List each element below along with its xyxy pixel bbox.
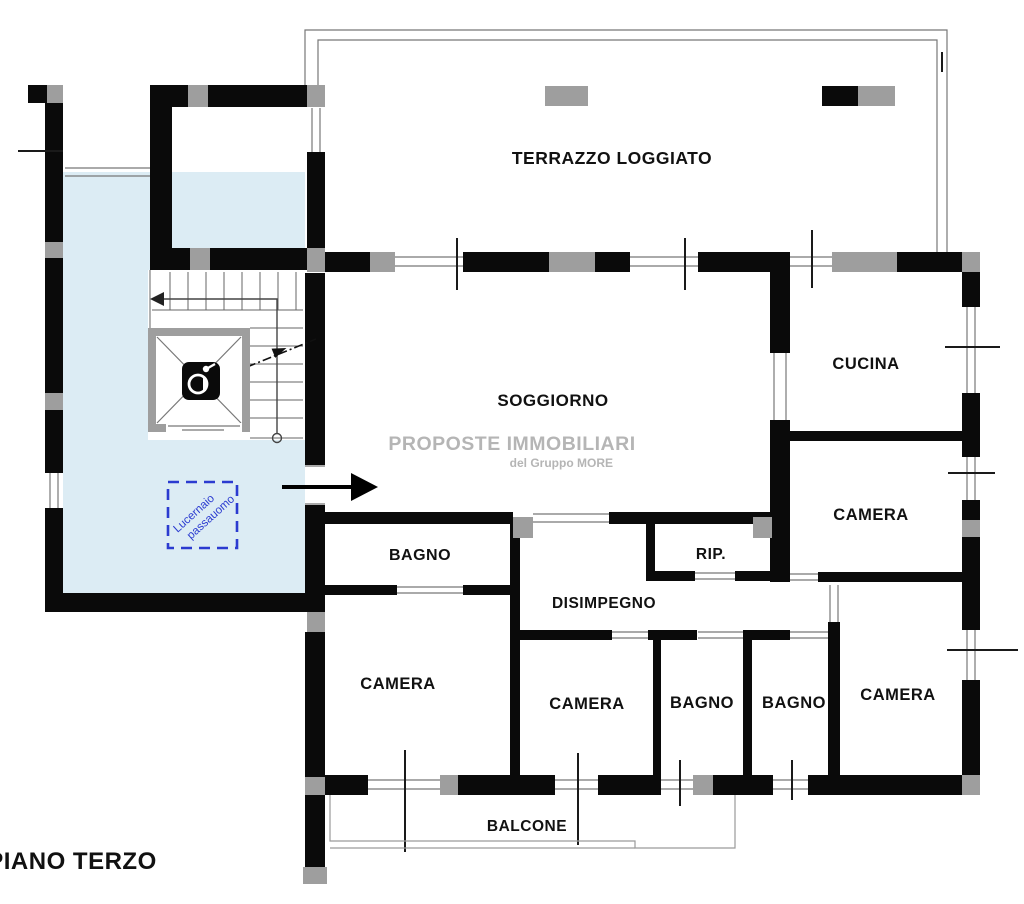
floor-plan-page: Lucernaio passauomo PROPOSTE IMMOBILIARI… — [0, 0, 1024, 904]
floor-plan-drawing: Lucernaio passauomo PROPOSTE IMMOBILIARI… — [0, 0, 1024, 904]
room-label-camera-lower-right: CAMERA — [860, 686, 935, 704]
terrace-outline — [305, 30, 947, 252]
room-label-bagno-upper: BAGNO — [389, 547, 451, 564]
watermark-line1: PROPOSTE IMMOBILIARI — [388, 433, 635, 455]
room-label-cucina: CUCINA — [832, 355, 899, 373]
room-label-camera-lower-left: CAMERA — [360, 675, 435, 693]
room-label-bagno-lower-right: BAGNO — [762, 694, 826, 712]
room-label-balcone: BALCONE — [487, 818, 567, 835]
room-label-soggiorno: SOGGIORNO — [497, 391, 608, 410]
room-label-bagno-lower-left: BAGNO — [670, 694, 734, 712]
room-label-rip: RIP. — [696, 546, 726, 563]
room-label-camera-right-upper: CAMERA — [833, 506, 908, 524]
elevator-icon — [182, 362, 220, 400]
room-label-disimpegno: DISIMPEGNO — [552, 595, 656, 612]
page-title: PIANO TERZO — [0, 848, 157, 875]
room-label-camera-lower-center: CAMERA — [549, 695, 624, 713]
watermark-line2: del Gruppo MORE — [510, 456, 613, 470]
room-labels: TERRAZZO LOGGIATO SOGGIORNO CUCINA CAMER… — [360, 148, 935, 835]
elevator — [148, 328, 250, 432]
room-label-terrazzo: TERRAZZO LOGGIATO — [512, 148, 712, 168]
watermark: PROPOSTE IMMOBILIARI del Gruppo MORE — [388, 433, 635, 470]
